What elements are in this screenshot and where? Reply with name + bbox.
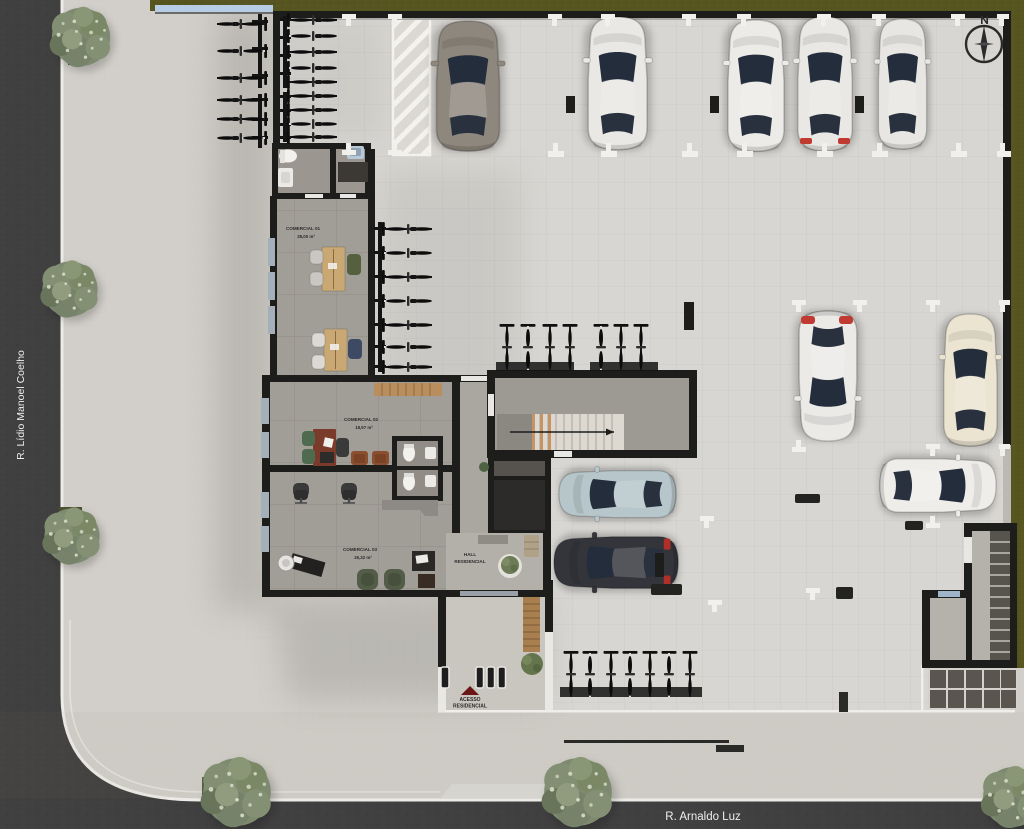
svg-text:COMERCIAL 02: COMERCIAL 02 [344, 417, 379, 422]
svg-text:R. Arnaldo Luz: R. Arnaldo Luz [665, 811, 741, 823]
svg-text:HALL: HALL [464, 552, 476, 557]
svg-text:28,00 m²: 28,00 m² [297, 234, 315, 239]
svg-text:RESIDENCIAL: RESIDENCIAL [453, 704, 487, 710]
svg-text:R. Lídio Manoel Coelho: R. Lídio Manoel Coelho [15, 350, 27, 460]
svg-text:ACESSO: ACESSO [459, 697, 480, 703]
svg-text:COMERCIAL 01: COMERCIAL 01 [286, 226, 321, 231]
svg-text:COMERCIAL 03: COMERCIAL 03 [343, 547, 378, 552]
svg-text:18,97 m²: 18,97 m² [355, 425, 373, 430]
svg-text:26,32 m²: 26,32 m² [354, 555, 372, 560]
svg-text:RESIDENCIAL: RESIDENCIAL [454, 559, 485, 564]
